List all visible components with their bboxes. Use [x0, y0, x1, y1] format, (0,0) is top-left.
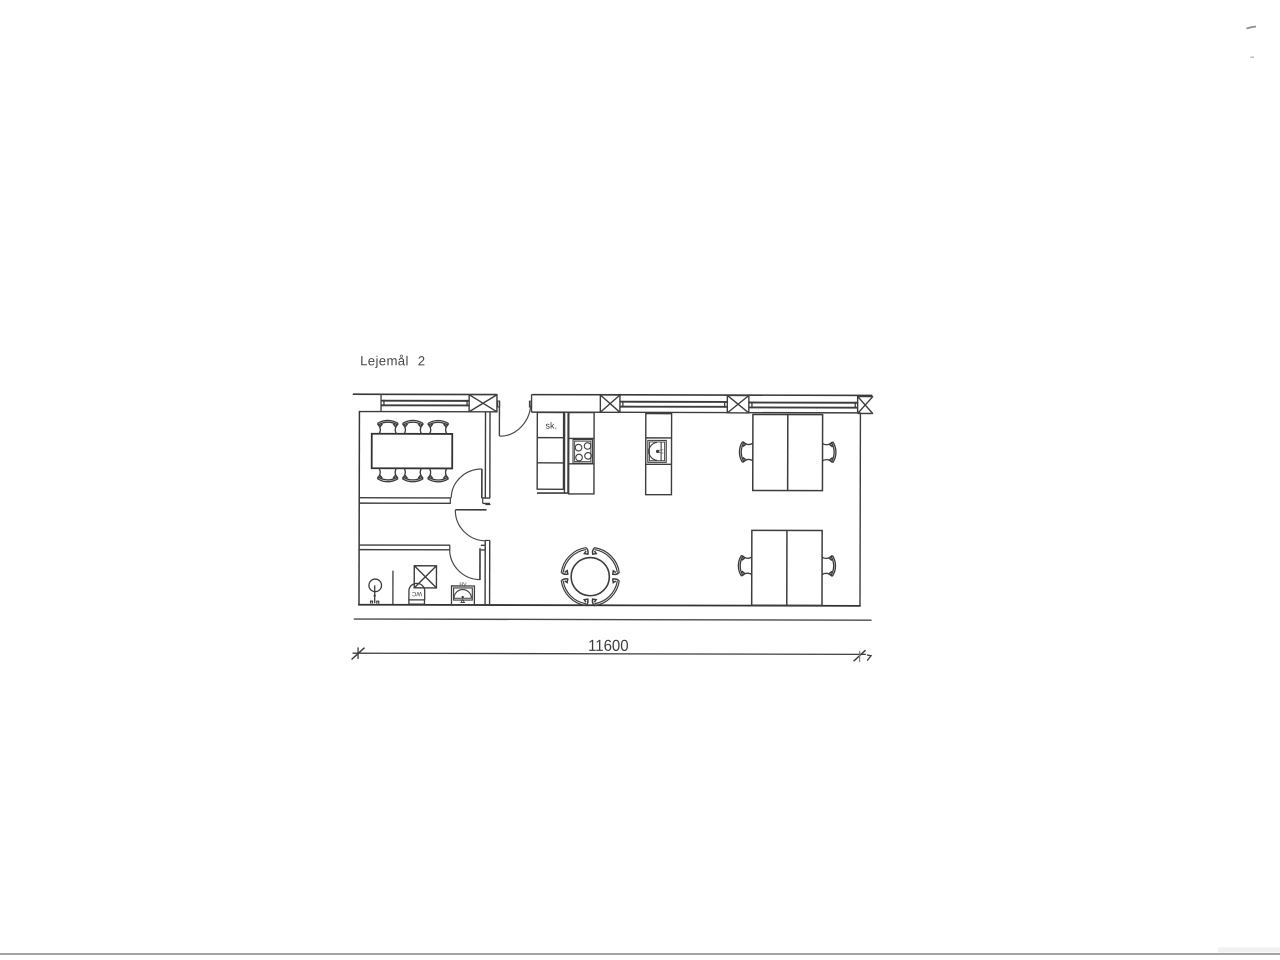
- svg-text:11600: 11600: [588, 638, 629, 655]
- svg-text:sk.: sk.: [545, 421, 557, 431]
- svg-text:2: 2: [418, 353, 425, 368]
- svg-text:Lejemål: Lejemål: [360, 353, 409, 368]
- svg-text:HV: HV: [459, 582, 467, 588]
- svg-text:WC: WC: [411, 590, 422, 597]
